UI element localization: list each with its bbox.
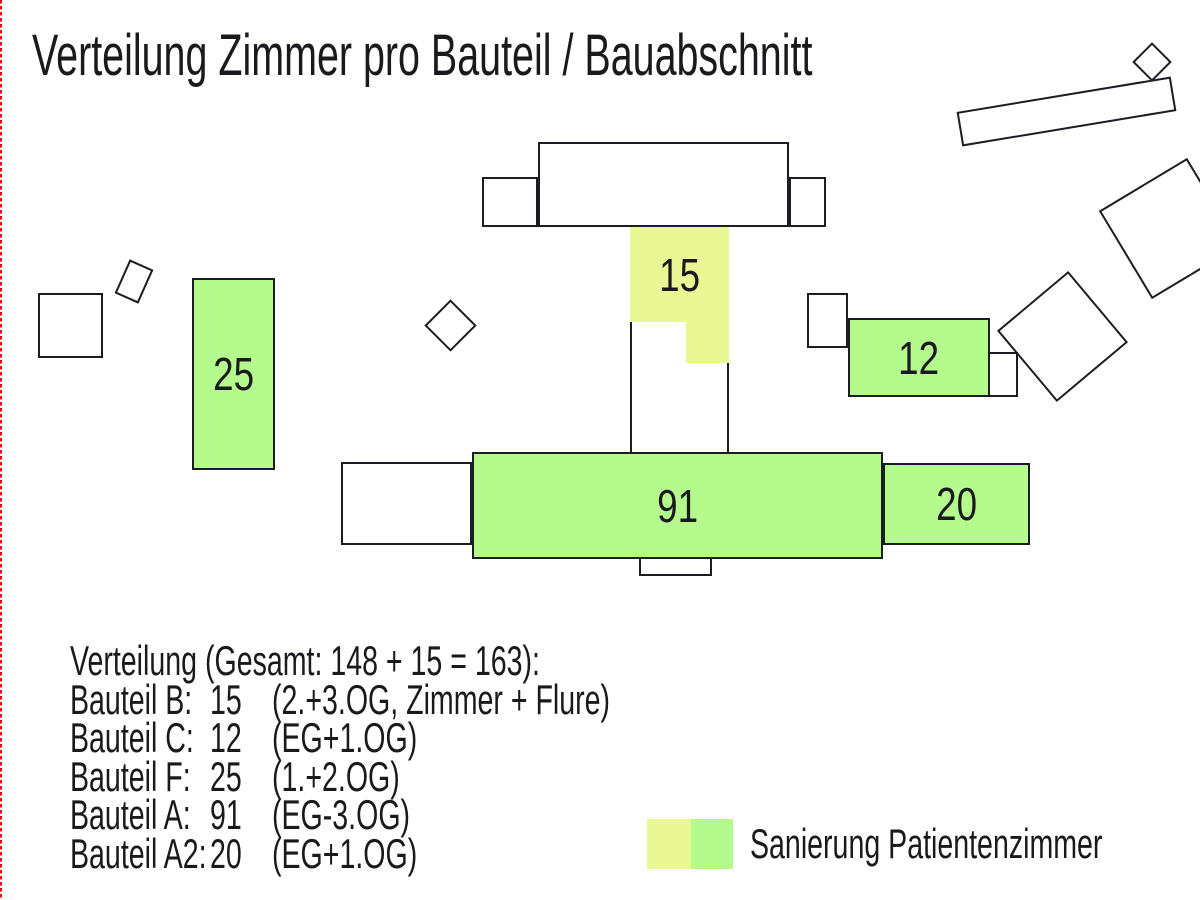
building-annex-below-bauteil-a: [639, 557, 712, 576]
legend-swatch-green: [691, 819, 733, 869]
building-bauteil-f: 25: [192, 278, 275, 470]
bauteil-a-room-count: 91: [657, 483, 698, 529]
building-top-left-annex: [482, 177, 538, 227]
building-top-right-annex: [789, 177, 826, 227]
left-crop-mark-dashed-line: [0, 0, 2, 900]
row-label: Bauteil A2:: [70, 835, 207, 874]
page-title: Verteilung Zimmer pro Bauteil / Bauabsch…: [32, 24, 1180, 88]
bauteil-a2-label: 20: [885, 465, 1028, 543]
building-bauteil-b-wing: 15: [630, 227, 729, 452]
building-bauteil-a2: 20: [883, 463, 1030, 545]
bauteil-a2-room-count: 20: [936, 481, 977, 527]
row-note: (EG+1.OG): [272, 835, 417, 874]
bauteil-c-label: 12: [850, 320, 988, 395]
legend-swatch-yellow: [647, 819, 691, 869]
row-value: 20: [210, 835, 242, 874]
outbuilding-small-rect-left-rotated: [114, 259, 153, 303]
outbuilding-square-above-bauteil-c: [807, 293, 848, 348]
legend-label: Sanierung Patientenzimmer: [750, 819, 1102, 869]
bauteil-f-room-count: 25: [213, 351, 254, 397]
building-top-main-rect: [538, 142, 789, 227]
building-bauteil-a: 91: [472, 452, 883, 559]
bauteil-a-label: 91: [474, 454, 881, 557]
outbuilding-diamond-center-left: [424, 299, 476, 351]
bauteil-b-highlight-lower: [686, 322, 729, 363]
outbuilding-square-right-edge-rotated: [1098, 157, 1200, 298]
page-title-text: Verteilung Zimmer pro Bauteil / Bauabsch…: [32, 24, 812, 88]
bauteil-f-label: 25: [194, 280, 273, 468]
bauteil-b-room-count: 15: [659, 252, 700, 298]
bauteil-c-room-count: 12: [899, 335, 940, 381]
bauteil-b-label: 15: [630, 227, 729, 322]
outbuilding-square-left: [38, 293, 103, 358]
building-annex-left-of-bauteil-a: [341, 462, 472, 545]
building-bauteil-c: 12: [848, 318, 990, 397]
site-plan-canvas: Verteilung Zimmer pro Bauteil / Bauabsch…: [0, 0, 1200, 900]
